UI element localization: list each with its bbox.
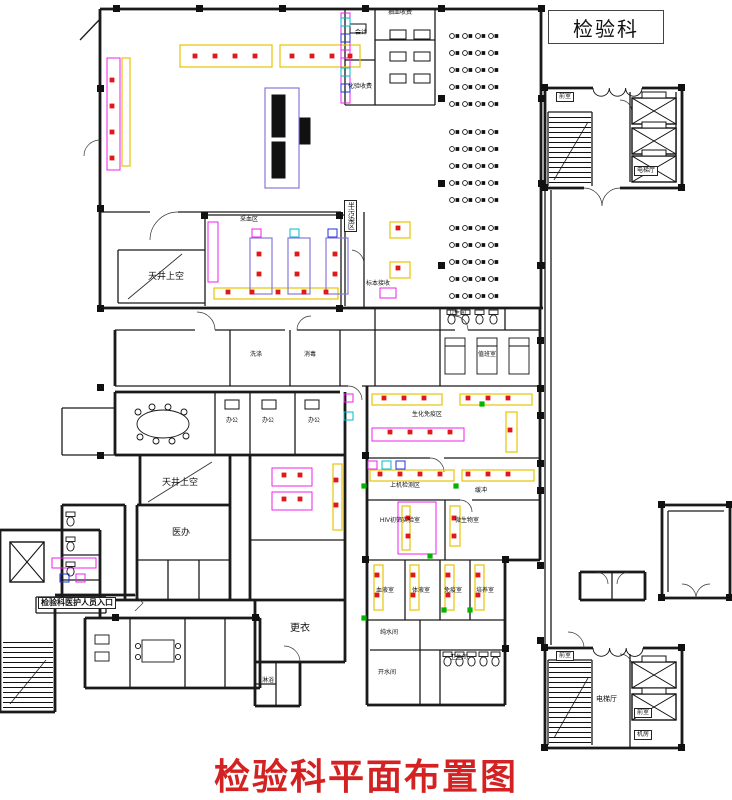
room-label: 电梯厅 xyxy=(634,166,658,176)
outer-walls xyxy=(0,9,730,748)
room-label: 机房 xyxy=(634,730,652,740)
page-title: 检验科平面布置图 xyxy=(0,748,732,800)
door-arcs xyxy=(84,100,710,666)
stairs-top-core xyxy=(549,113,591,185)
floorplan-canvas: 天井上空天井上空医办更衣检验科医护人员入口卫生间卫生间半污染区采血区抽血收费会计… xyxy=(0,0,732,800)
partition-walls xyxy=(36,10,724,748)
lab-benches xyxy=(122,45,534,610)
stairs-left xyxy=(3,638,53,708)
equipment-markers xyxy=(52,13,512,621)
waiting-area-seats xyxy=(450,34,499,299)
toilet-fixtures xyxy=(66,310,500,666)
duty-room-beds xyxy=(445,338,529,374)
room-label: 前室 xyxy=(556,92,574,102)
elevator-1 xyxy=(632,92,676,124)
legend-label: 检验科 xyxy=(573,13,639,42)
elevator-4 xyxy=(632,656,676,688)
room-label: 半污染区 xyxy=(344,200,357,232)
floorplan-drawing xyxy=(0,0,732,800)
conference-table xyxy=(135,404,189,444)
room-label: 前室 xyxy=(556,651,574,661)
room-label: 检验科医护人员入口 xyxy=(38,597,116,609)
stairs-bottom-core xyxy=(549,661,591,744)
legend-box: 检验科 xyxy=(548,10,664,44)
breakroom-table xyxy=(95,635,181,662)
elevator-2 xyxy=(632,122,676,154)
elevator-left-edge xyxy=(10,542,44,582)
room-label: 前室 xyxy=(634,708,652,718)
